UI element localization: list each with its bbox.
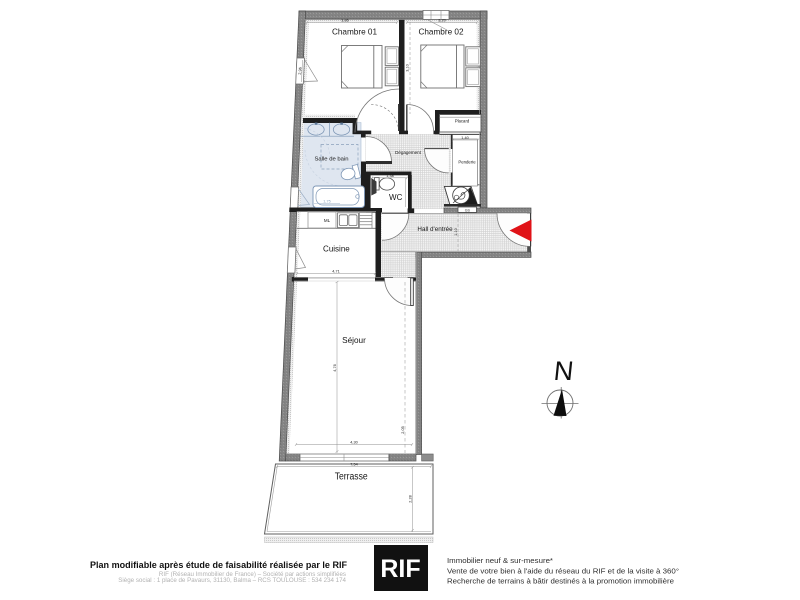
svg-text:Hall d'entrée: Hall d'entrée: [417, 226, 453, 233]
svg-text:WC: WC: [389, 193, 403, 202]
svg-text:1,38: 1,38: [386, 174, 393, 178]
svg-text:N: N: [552, 355, 575, 386]
svg-text:4,71: 4,71: [332, 269, 339, 273]
svg-text:Dégagement: Dégagement: [395, 150, 422, 155]
svg-text:Vente de votre bien à l'aide d: Vente de votre bien à l'aide du réseau d…: [447, 567, 679, 576]
svg-text:Recherche de terrains à bâtir: Recherche de terrains à bâtir destinés à…: [447, 577, 674, 586]
svg-text:2,05: 2,05: [401, 426, 405, 433]
svg-text:Placard: Placard: [455, 118, 470, 123]
svg-text:Cuisine: Cuisine: [323, 245, 350, 254]
svg-text:Chambre 01: Chambre 01: [332, 28, 378, 37]
svg-text:3,86: 3,86: [341, 18, 348, 22]
svg-text:7,54: 7,54: [350, 462, 357, 466]
svg-text:2,28: 2,28: [408, 495, 412, 502]
svg-text:1,10: 1,10: [454, 228, 458, 235]
svg-text:4,76: 4,76: [333, 364, 337, 371]
svg-text:RIF: RIF: [380, 555, 420, 583]
svg-text:Siège social : 1 place de Pava: Siège social : 1 place de Pavaurs, 31130…: [118, 577, 346, 584]
svg-text:Séjour: Séjour: [342, 336, 366, 345]
svg-text:2,96: 2,96: [298, 67, 303, 75]
svg-text:Plan modifiable après étude de: Plan modifiable après étude de faisabili…: [90, 560, 347, 571]
svg-text:Terrasse: Terrasse: [335, 472, 368, 483]
svg-text:GS: GS: [465, 208, 471, 212]
svg-text:Immobilier neuf & sur-mesure*: Immobilier neuf & sur-mesure*: [447, 556, 553, 565]
svg-text:3,20: 3,20: [438, 18, 445, 22]
svg-text:ML: ML: [324, 218, 331, 223]
svg-text:4,30: 4,30: [350, 440, 357, 444]
svg-text:1,75: 1,75: [323, 199, 330, 203]
svg-text:Salle de bain: Salle de bain: [314, 157, 348, 163]
svg-text:Chambre 02: Chambre 02: [418, 28, 464, 37]
svg-text:1,40: 1,40: [461, 136, 468, 140]
svg-text:Penderie: Penderie: [458, 160, 476, 165]
svg-text:3,10: 3,10: [406, 64, 410, 71]
